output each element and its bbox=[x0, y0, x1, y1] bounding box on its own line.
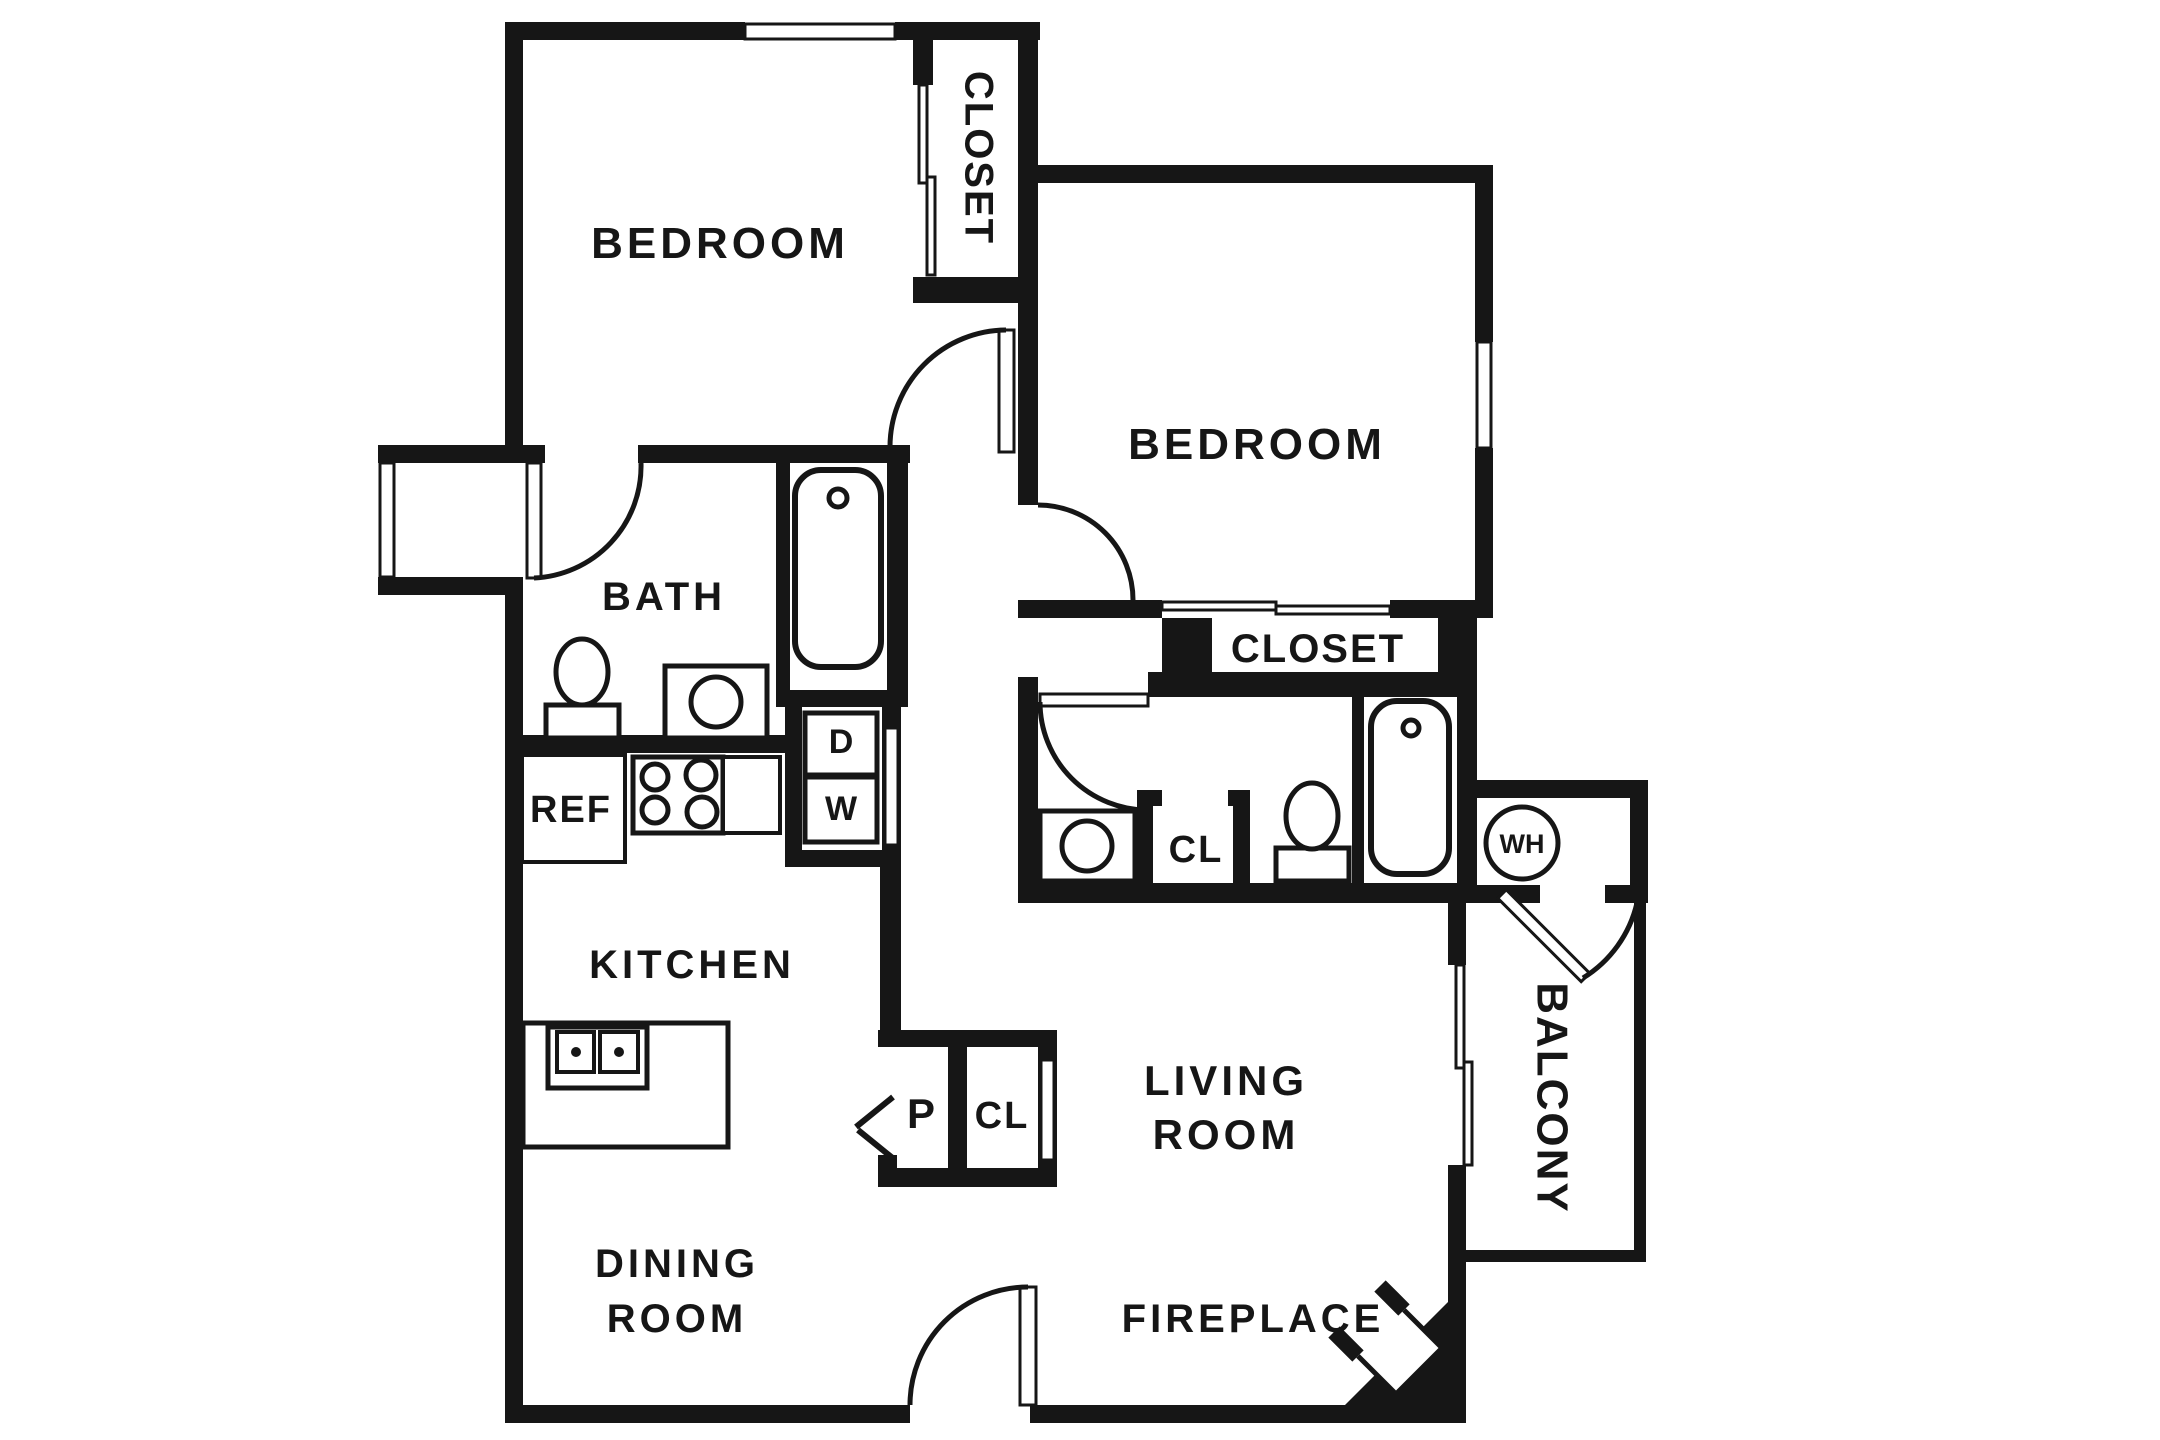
entry-door bbox=[910, 1287, 1036, 1405]
fireplace-label: FIREPLACE bbox=[1122, 1297, 1385, 1341]
balcony-sliding-door bbox=[1456, 965, 1472, 1165]
bath1-sink bbox=[665, 666, 767, 738]
pantry-bifold-door bbox=[856, 1097, 895, 1160]
pantry-label: P bbox=[907, 1090, 935, 1137]
kitchen-island bbox=[523, 1023, 728, 1147]
bath1-door bbox=[527, 463, 641, 578]
dryer-label: D bbox=[829, 723, 854, 761]
stove bbox=[633, 757, 723, 833]
floor-plan-drawing: BEDROOM CLOSET BATH REF D W KITCHEN DINI… bbox=[0, 0, 2160, 1440]
bath1-bathtub bbox=[795, 470, 881, 667]
bedroom1-closet-sliding-door bbox=[919, 85, 935, 275]
washer-label: W bbox=[825, 790, 858, 828]
hall-closet-label: CL bbox=[975, 1095, 1030, 1137]
bedroom1-closet-label: CLOSET bbox=[956, 71, 1000, 245]
laundry-closet-door bbox=[885, 728, 898, 845]
bedroom2-window bbox=[1477, 342, 1491, 448]
bath1-toilet bbox=[546, 639, 619, 738]
bath2-door bbox=[1040, 694, 1148, 810]
bath2-closet-label: CL bbox=[1169, 829, 1224, 871]
living-room-label-line2: ROOM bbox=[1153, 1111, 1300, 1158]
hall-closet-door bbox=[1041, 1060, 1054, 1160]
bedroom2-label: BEDROOM bbox=[1128, 420, 1386, 469]
balcony-label: BALCONY bbox=[1527, 982, 1576, 1214]
bedroom2-closet-sliding-door bbox=[1162, 602, 1390, 614]
kitchen-label: KITCHEN bbox=[589, 943, 795, 987]
refrigerator-label: REF bbox=[530, 789, 612, 831]
dining-room-label-line1: DINING bbox=[595, 1242, 759, 1286]
bedroom1-label: BEDROOM bbox=[591, 219, 849, 268]
kitchen-counter bbox=[723, 757, 780, 833]
bath1-bay-window bbox=[380, 463, 394, 577]
bath2-bathtub bbox=[1371, 701, 1449, 874]
dining-room-label-line2: ROOM bbox=[607, 1297, 747, 1341]
water-heater-closet-door bbox=[1498, 890, 1637, 982]
bedroom1-window bbox=[745, 24, 895, 39]
bedroom2-door bbox=[1038, 505, 1133, 600]
floor-plan-page: BEDROOM CLOSET BATH REF D W KITCHEN DINI… bbox=[0, 0, 2160, 1440]
bath1-label: BATH bbox=[602, 575, 726, 619]
bedroom1-door bbox=[890, 330, 1014, 452]
bedroom2-closet-label: CLOSET bbox=[1231, 627, 1405, 671]
bath2-toilet bbox=[1276, 783, 1349, 881]
living-room-label-line1: LIVING bbox=[1144, 1057, 1308, 1104]
water-heater-label: WH bbox=[1500, 829, 1545, 859]
bath2-sink bbox=[1040, 811, 1135, 881]
